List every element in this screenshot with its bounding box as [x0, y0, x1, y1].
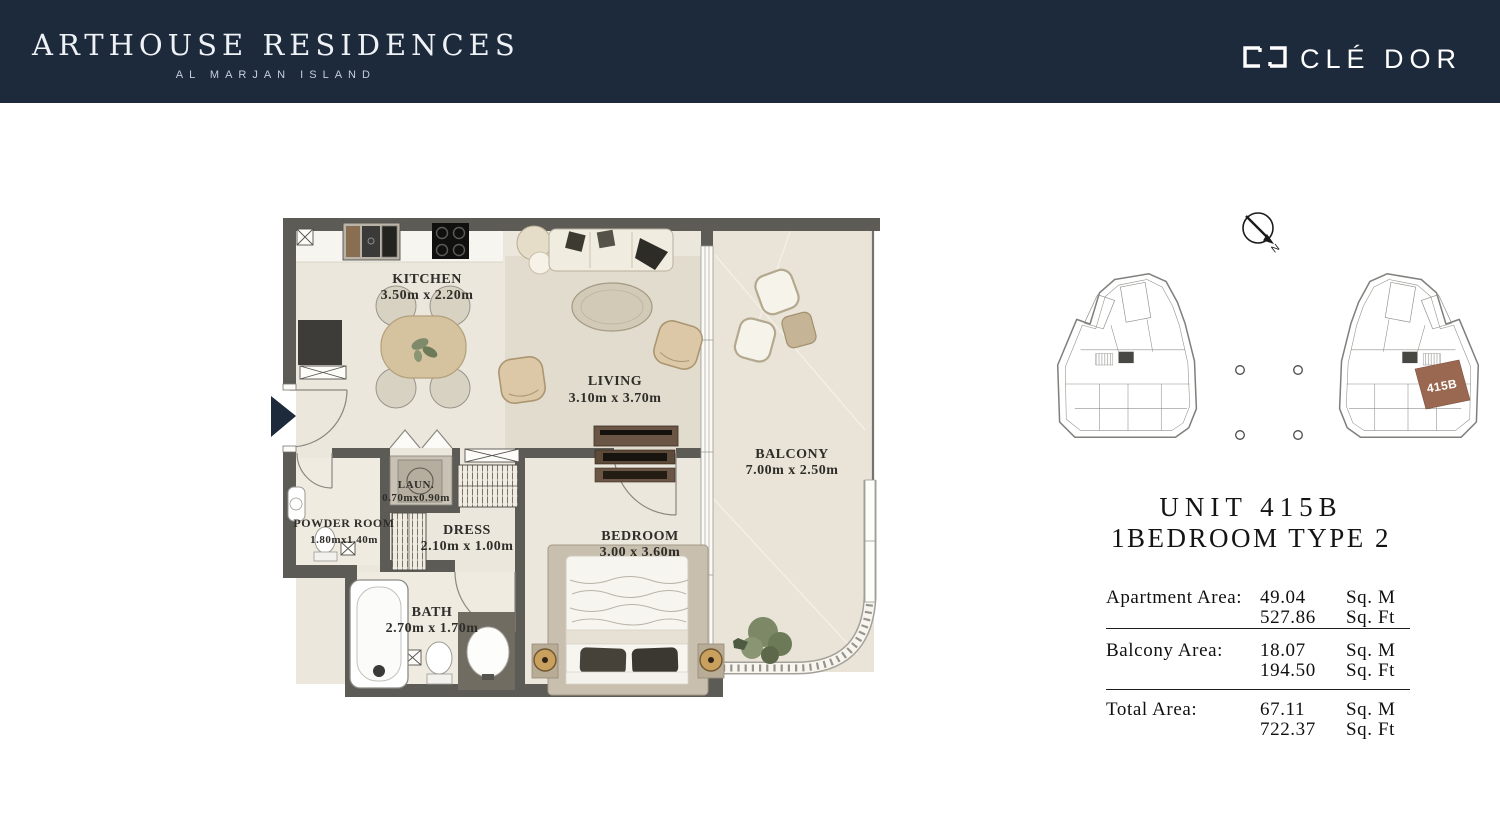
- compass-n-label: N: [1270, 242, 1282, 255]
- area-units: Sq. M Sq. Ft: [1346, 700, 1410, 740]
- pillow-left: [580, 647, 627, 675]
- area-table: Apartment Area: 49.04 527.86 Sq. M Sq. F…: [1106, 584, 1410, 740]
- area-sqft-unit: Sq. Ft: [1346, 661, 1410, 681]
- keyplan-right: 415B: [1340, 274, 1479, 437]
- keyplan-dots: [1236, 366, 1303, 440]
- bed: [566, 556, 688, 684]
- bath-toilet: [426, 642, 452, 684]
- shaft-hall: [465, 449, 519, 462]
- powder-floor: [296, 458, 380, 565]
- pillow-right: [632, 647, 679, 675]
- area-row-apartment: Apartment Area: 49.04 527.86 Sq. M Sq. F…: [1106, 584, 1410, 628]
- area-sqft-unit: Sq. Ft: [1346, 608, 1410, 628]
- laundry-label: LAUN.: [398, 479, 434, 491]
- balcony-label: BALCONY: [755, 447, 829, 462]
- kitchen-dims: 3.50m x 2.20m: [381, 288, 474, 303]
- dress-dims: 2.10m x 1.00m: [421, 539, 514, 554]
- blanket-band: [566, 630, 688, 644]
- area-sqft-value: 194.50: [1260, 661, 1346, 681]
- bedroom-dims: 3.00 x 3.60m: [600, 545, 681, 560]
- area-sqm-unit: Sq. M: [1346, 641, 1410, 661]
- wall-powder-bottom: [283, 565, 357, 578]
- bath-dims: 2.70m x 1.70m: [386, 621, 479, 636]
- appliance-block: [343, 223, 400, 260]
- armchair-left: [497, 355, 547, 405]
- area-sqm-unit: Sq. M: [1346, 700, 1410, 720]
- area-label: Balcony Area:: [1106, 641, 1260, 681]
- dining-table: [381, 316, 466, 378]
- compass: N: [1243, 213, 1282, 256]
- area-values: 49.04 527.86: [1260, 588, 1346, 628]
- area-sqft-value: 527.86: [1260, 608, 1346, 628]
- entrance-arrow: [271, 396, 296, 437]
- shaft-corner: [297, 229, 313, 245]
- living-dims: 3.10m x 3.70m: [569, 391, 662, 406]
- balcony-dims: 7.00m x 2.50m: [746, 463, 839, 478]
- powder-dims: 1.80mx1.40m: [310, 534, 378, 546]
- sofa: [549, 229, 673, 271]
- area-row-balcony: Balcony Area: 18.07 194.50 Sq. M Sq. Ft: [1106, 628, 1410, 689]
- tv-console: [594, 426, 678, 446]
- kitchen-tall-unit: [298, 320, 342, 365]
- area-sqft-value: 722.37: [1260, 720, 1346, 740]
- kitchen-label: KITCHEN: [392, 272, 462, 287]
- living-label: LIVING: [588, 374, 642, 389]
- powder-label: POWDER ROOM: [293, 516, 394, 530]
- compass-needle: [1246, 216, 1267, 237]
- unit-number: UNIT 415B: [1072, 492, 1430, 523]
- area-sqm-unit: Sq. M: [1346, 588, 1410, 608]
- area-sqft-unit: Sq. Ft: [1346, 720, 1410, 740]
- wall-divider-stub-top: [701, 231, 713, 246]
- area-row-total: Total Area: 67.11 722.37 Sq. M Sq. Ft: [1106, 689, 1410, 740]
- area-values: 18.07 194.50: [1260, 641, 1346, 681]
- keyplan-left: [1058, 274, 1197, 437]
- brochure-page: ARTHOUSE RESIDENCES AL MARJAN ISLAND CLÉ…: [0, 0, 1500, 820]
- area-sqm-value: 49.04: [1260, 588, 1346, 608]
- unit-type: 1BEDROOM TYPE 2: [1072, 523, 1430, 554]
- bath-label: BATH: [412, 605, 453, 620]
- wall-laundry-bottom: [388, 505, 460, 513]
- area-values: 67.11 722.37: [1260, 700, 1346, 740]
- area-label: Apartment Area:: [1106, 588, 1260, 628]
- hob: [432, 223, 469, 259]
- area-units: Sq. M Sq. Ft: [1346, 641, 1410, 681]
- laundry-dims: 0.70mx0.90m: [382, 492, 450, 504]
- wall-left-upper: [283, 231, 296, 390]
- area-label: Total Area:: [1106, 700, 1260, 740]
- shaft-left: [300, 366, 346, 379]
- dress-label: DRESS: [443, 523, 491, 538]
- unit-title-block: UNIT 415B 1BEDROOM TYPE 2: [1072, 492, 1430, 554]
- area-units: Sq. M Sq. Ft: [1346, 588, 1410, 628]
- bedroom-label: BEDROOM: [601, 529, 678, 544]
- area-sqm-value: 67.11: [1260, 700, 1346, 720]
- area-sqm-value: 18.07: [1260, 641, 1346, 661]
